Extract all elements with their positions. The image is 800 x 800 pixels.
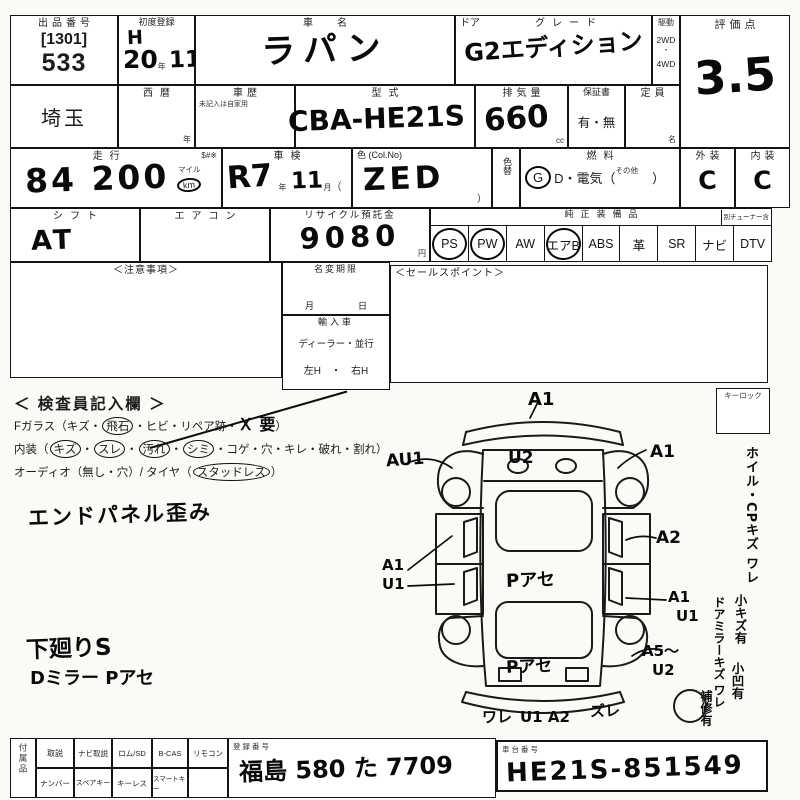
shaken-month: 11 [291,169,324,193]
recycle-value: 9080 [271,221,430,255]
model-label: 型式 [296,88,474,99]
history-label: 車歴 [196,88,294,99]
history-cell: 車歴 未記入は自家用 [195,85,295,148]
import-box: 輸入車 ディーラー・並行 左H ・ 右H [282,315,390,390]
car-name-label: 車 名 [196,18,454,29]
equipment-item-ps: PS [431,226,468,262]
ann-rear-bumper-right: ズレ [590,699,621,721]
audio-tail: ） [271,467,283,479]
fuel-other: その他 [616,165,639,176]
caution-notes-box: ＜注意事項＞ [10,262,282,378]
equipment-item-leather: 革 [619,226,657,262]
ann-right-quarter-b: U2 [652,661,675,679]
mileage-value: 84 200 [24,159,169,197]
chassis-number-cell: 車台番号 HE21S-851549 [496,740,768,792]
auction-sheet: 出品番号 [1301] 533 初度登録 H 20 年 11 月 車 名 ラパン… [0,0,800,800]
mileage-cell: 走行 $#※ 84 200 マイル km [10,148,222,208]
ann-right-rear-door-a: A1 [668,588,690,606]
displacement-unit: cc [556,136,564,145]
ann-rear-bumper-left: ワレ [482,706,512,727]
key-lock-box: キーロック [716,388,770,434]
int-tail: ・コゲ・穴・キレ・破れ・割れ） [215,444,388,456]
warranty-label: 保証書 [569,88,624,98]
recycle-unit: 円 [418,248,426,259]
first-reg-era: H [127,27,195,48]
first-reg-year: 20 [123,47,158,72]
prefecture-cell: 埼玉 [10,85,118,148]
grade-value: G2エディション [455,28,651,66]
warranty-options: 有・無 [569,112,624,131]
model-value: CBA-HE21S [288,102,475,136]
recycle-deposit-cell: リサイクル預託金 9080 円 [270,208,430,262]
ann-front-bumper: A1 [528,389,554,410]
cell-rom-sd: ロム/SD [112,738,152,768]
ann-right-front-fender: A1 [650,442,675,462]
sales-point-label: ＜セールスポイント＞ [395,268,767,279]
note-end-panel: エンドパネル歪み [28,502,213,529]
ann-left-door-a: A1 [382,556,404,574]
prefecture-value: 埼玉 [11,102,117,131]
displacement-label: 排気量 [476,88,567,99]
import-label: 輸入車 [283,318,389,328]
side-note-small-dent: 小凹有 [730,662,743,712]
cell-spare-key: スペアキー [74,768,112,798]
warranty-cell: 保証書 有・無 [568,85,625,148]
drive-label: 駆動 [653,17,679,28]
import-handle-side: 左H ・ 右H [283,362,389,377]
shift-label: シフト [11,211,139,222]
side-note-small-scratch: 小キズ有 [733,594,746,656]
note-underside: 下廻りS [26,637,112,663]
note-door-mirror: Dミラー Pアセ [30,670,154,688]
color-close-paren: ） [477,190,487,205]
tire-circled-studless: スタッドレス [193,463,270,481]
displacement-cell: 排気量 660 cc [475,85,568,148]
drive-2wd: 2WD [653,35,679,45]
displacement-value: 660 [483,100,568,137]
key-lock-label: キーロック [717,390,769,401]
grade-cell: ドア グレード G2エディション [455,15,652,85]
drive-4wd: 4WD [653,59,679,69]
exterior-grade-cell: 外装 C [680,148,735,208]
aircon-label: エアコン [141,211,269,222]
equipment-item-dtv: DTV [733,226,771,262]
caution-notes-label: ＜注意事項＞ [11,265,281,276]
seireki-unit: 年 [183,134,191,145]
score-cell: 評価点 3.5 [680,15,790,148]
fuel-close: ） [652,168,665,187]
int-circled-sure: スレ [94,440,125,458]
shaken-month-unit: 月 [323,182,331,193]
name-change-month: 月 [305,299,314,312]
equipment-item-airbag: エアB [544,226,582,262]
capacity-label: 定員 [626,88,679,99]
fglass-head: Fガラス（キズ・ [14,421,101,433]
equipment-item-navi: ナビ [695,226,733,262]
interior-condition-line: 内装（キズ・スレ・汚れ・シミ・コゲ・穴・キレ・破れ・割れ） [14,440,388,458]
accessories-section-cell: 付属品 [10,738,36,798]
audio-head: オーディオ（無し・穴）/ タイヤ（ [14,467,192,479]
cell-smart-key: スマートキー [152,768,188,798]
ann-right-front-door: A2 [656,528,681,548]
registration-value: 福島 580 た 7709 [239,752,496,785]
seireki-cell: 西暦 年 [118,85,195,148]
mileage-marks: $#※ [201,151,217,162]
equipment-item-aw: AW [506,226,544,262]
name-change-label: 名変期限 [283,265,389,275]
cell-bcas: B-CAS [152,738,188,768]
shift-cell: シフト AT [10,208,140,262]
color-change-cell: 色替 [492,148,520,208]
car-name-value: ラパン [195,29,454,72]
shaken-year-unit: 年 [278,182,286,193]
ann-left-door-b: U1 [382,575,405,593]
aircon-cell: エアコン [140,208,270,262]
lot-number-cell: 出品番号 [1301] 533 [10,15,118,85]
ann-roof: Pアセ [506,565,556,593]
color-value: ZED [362,161,491,196]
seireki-label: 西暦 [119,88,194,99]
import-dealer-parallel: ディーラー・並行 [283,336,389,350]
inspector-section-title: ＜ 検査員記入欄 ＞ [14,392,167,414]
capacity-unit: 名 [668,134,676,145]
mileage-unit-km: km [177,177,202,193]
color-change-label: 色替 [501,157,511,201]
equipment-item-pw: PW [468,226,506,262]
car-name-cell: 車 名 ラパン [195,15,455,85]
fuel-label: 燃料 [521,151,679,162]
shaken-era-year: R7 [226,160,274,194]
ann-hood: U2 [508,448,534,468]
ann-rear-bumper-center: U1 A2 [520,708,570,726]
cell-navi-manual: ナビ取説 [74,738,112,768]
fglass-circled-tobiishi: 飛石 [102,417,133,435]
equipment-cell: 純正装備品 別チューナー含 PS PW AW エアB ABS 革 SR ナビ D… [430,208,772,262]
int-head: 内装（ [14,444,49,456]
ann-right-quarter-a: A5〜 [642,640,679,661]
interior-value: C [735,166,790,195]
cell-number-plate: ナンバー [36,768,74,798]
history-note: 未記入は自家用 [199,99,294,109]
tuner-note: 別チューナー含 [721,210,772,225]
color-cell: 色 (Col.No) ZED ） [352,148,492,208]
name-change-day: 日 [358,299,367,312]
car-diagram [380,388,720,740]
door-label: ドア [460,18,480,29]
interior-grade-cell: 内装 C [735,148,790,208]
shaken-paren: （ [331,178,341,193]
equipment-item-abs: ABS [582,226,620,262]
registration-label: 登録番号 [233,741,495,752]
capacity-cell: 定員 名 [625,85,680,148]
model-code-cell: 型式 CBA-HE21S [295,85,475,148]
ann-rear-gate: Pアセ [506,651,553,678]
cell-remote: リモコン [188,738,228,768]
int-circled-kizu: キズ [50,440,81,458]
first-registration-cell: 初度登録 H 20 年 11 月 [118,15,195,85]
first-reg-year-unit: 年 [158,61,166,72]
cell-empty [188,768,228,798]
fuel-options: D・電気（ [554,168,615,187]
equipment-row: PS PW AW エアB ABS 革 SR ナビ DTV [431,226,771,262]
sales-point-box: ＜セールスポイント＞ [390,265,768,383]
score-label: 評価点 [681,19,789,31]
ann-right-rear-door-b: U1 [676,607,699,625]
shaken-cell: 車検 R7 年 11 月 （ [222,148,352,208]
ann-left-front-fender: AU1 [385,449,425,472]
equipment-item-sr: SR [657,226,695,262]
lot-number-value: 533 [11,49,117,78]
name-change-box: 名変期限 月 日 [282,262,390,315]
fglass-tail: ） [275,421,287,433]
side-note-wheel-cp: ホイル・CPキズ ワレ [744,446,757,604]
lot-bracket: [1301] [11,31,117,49]
cell-keyless: キーレス [112,768,152,798]
audio-tire-line: オーディオ（無し・穴）/ タイヤ（スタッドレス） [14,463,282,481]
int-circled-shimi: シミ [183,440,214,458]
fuel-cell: 燃料 G D・電気（ その他 ） [520,148,680,208]
lot-number-label: 出品番号 [11,18,117,29]
chassis-value: HE21S-851549 [506,751,767,786]
exterior-label: 外装 [681,151,734,162]
mileage-unit-mile: マイル [177,164,201,175]
registration-number-cell: 登録番号 福島 580 た 7709 [228,738,496,798]
cell-manual: 取説 [36,738,74,768]
shift-value: AT [31,224,140,255]
accessories-section-label: 付属品 [17,743,29,793]
score-value: 3.5 [680,49,791,102]
fuel-gasoline: G [524,165,552,190]
exterior-value: C [680,166,735,195]
drive-cell: 駆動 2WD ・ 4WD [652,15,680,85]
interior-label: 内装 [736,151,789,162]
